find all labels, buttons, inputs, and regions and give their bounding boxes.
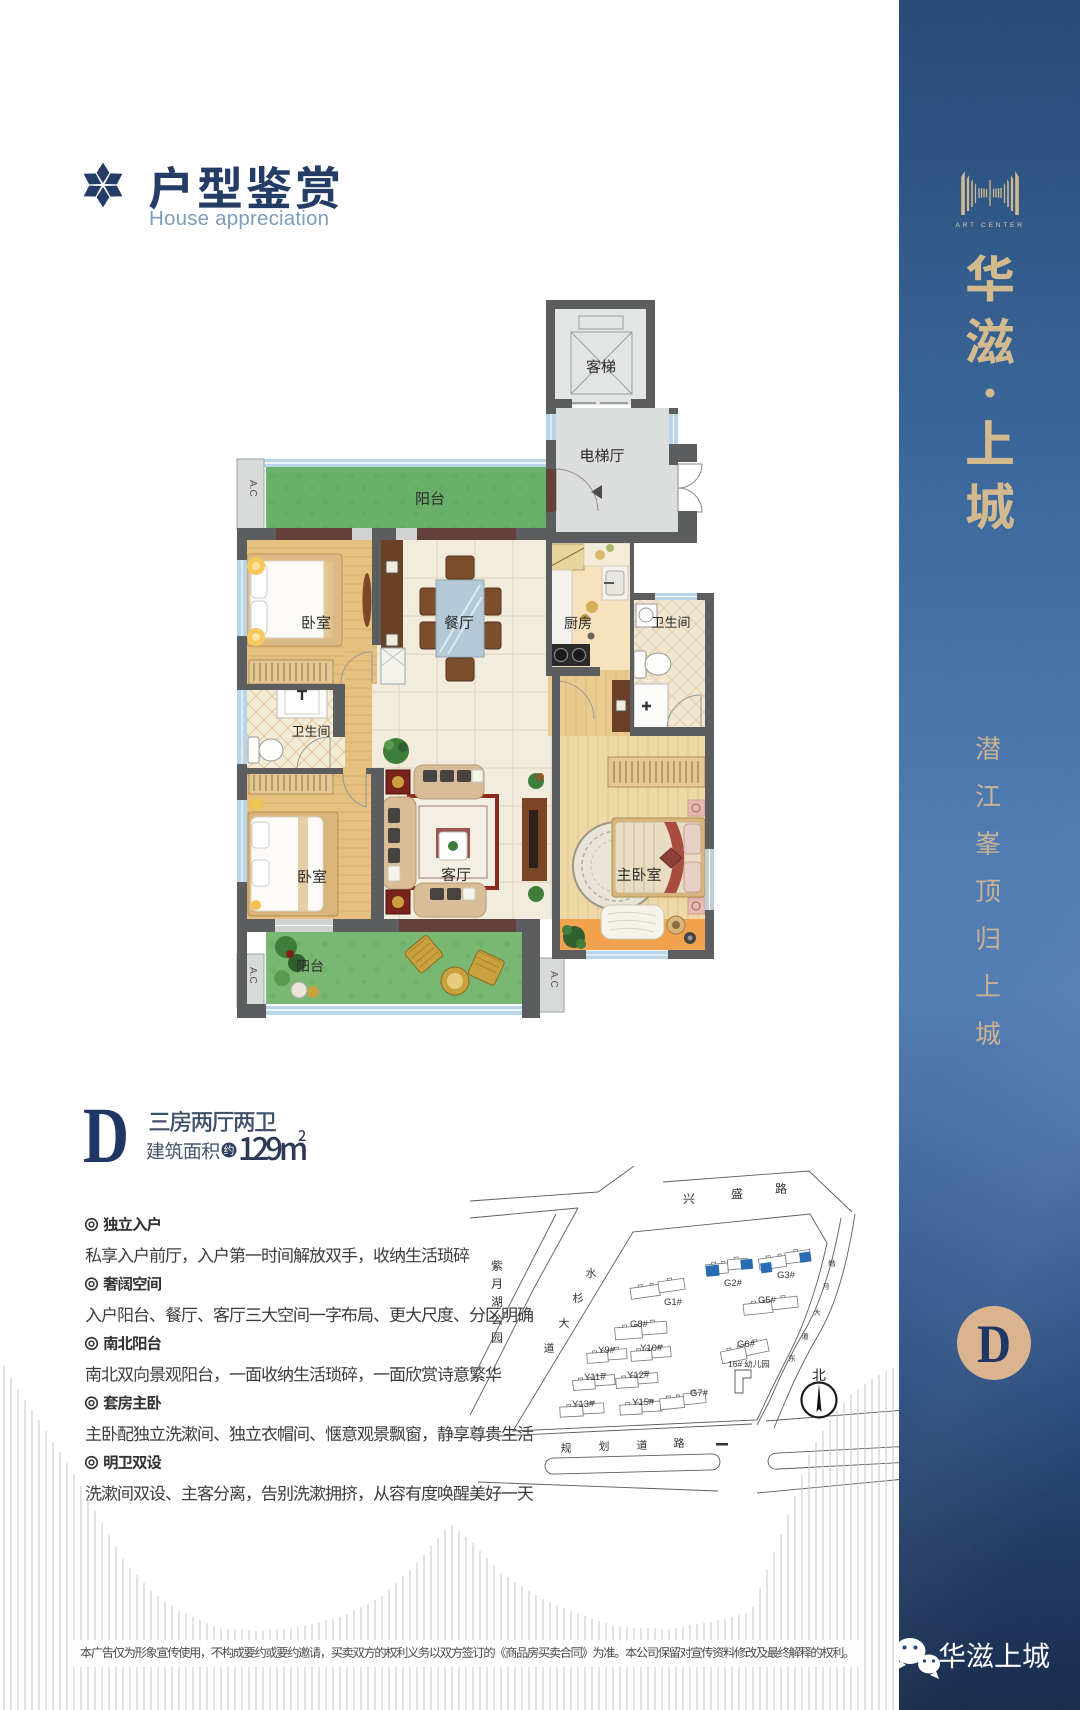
svg-text:G2#: G2# — [724, 1278, 743, 1289]
svg-text:A.C: A.C — [247, 480, 258, 497]
svg-text:G8#: G8# — [630, 1319, 649, 1330]
svg-text:A.C: A.C — [247, 967, 258, 984]
svg-text:G3#: G3# — [777, 1270, 796, 1281]
svg-text:D: D — [977, 1314, 1011, 1374]
svg-text:ART CENTER: ART CENTER — [955, 222, 1024, 229]
svg-text:G1#: G1# — [664, 1297, 683, 1308]
svg-text:G6#: G6# — [737, 1339, 756, 1350]
svg-text:Y10#: Y10# — [640, 1343, 663, 1354]
svg-text:G5#: G5# — [758, 1295, 777, 1306]
svg-text:A.C: A.C — [548, 971, 559, 988]
svg-text:D: D — [83, 1093, 129, 1180]
svg-text:Y9#: Y9# — [598, 1345, 616, 1356]
